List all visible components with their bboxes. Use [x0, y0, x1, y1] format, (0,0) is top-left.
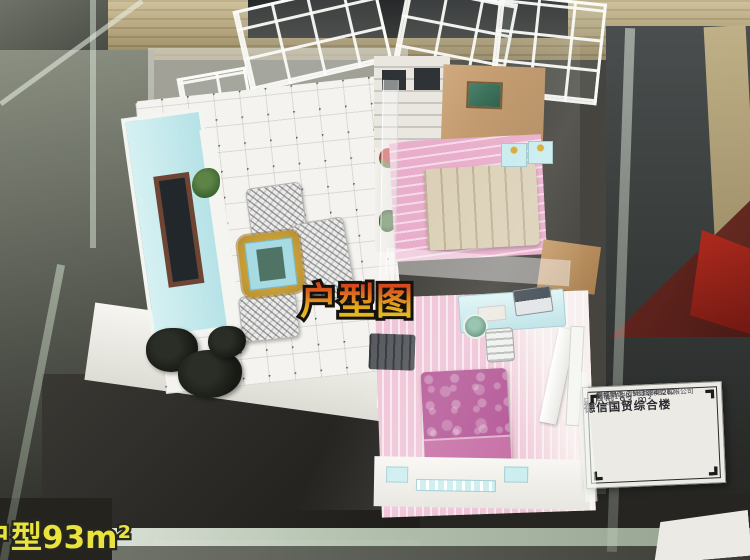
- nightstand-2: [528, 141, 553, 164]
- bedroom1-window-dark-2: [414, 68, 440, 90]
- wall-painting: [466, 81, 503, 109]
- desk-chair: [485, 327, 515, 363]
- placard: 德信国贸综合楼 E 户型 93 m² 比例: 1:20 模型制作:创新建筑模型有…: [582, 381, 726, 489]
- wardrobe: [368, 333, 415, 371]
- unit-area-caption-text: 户型93m²: [0, 520, 131, 556]
- bedroom1-bed: [424, 163, 540, 251]
- coffee-table-tray: [256, 247, 286, 282]
- floor-plan-caption-text: 户型图: [300, 280, 414, 323]
- unit-area-caption: 户型93m²: [0, 514, 148, 560]
- bedroom2-bed: [420, 368, 511, 470]
- display-case-photo: 户型图 德信国贸综合楼 E 户型 93 m² 比例: 1:20 模型制作:创新建…: [0, 0, 750, 560]
- bedroom2-bottom-band: [374, 456, 591, 510]
- bottom-glass-edge: [100, 528, 750, 548]
- cyan-trim-1: [386, 466, 408, 482]
- nightstand-1: [501, 143, 527, 167]
- green-stool: [463, 314, 488, 339]
- tv-screen: [159, 177, 199, 282]
- cyan-trim-3: [504, 466, 528, 482]
- floor-plan-caption: 户型图: [296, 276, 446, 328]
- cyan-trim-2: [416, 479, 496, 492]
- coffee-table-top: [244, 237, 297, 290]
- laptop: [512, 285, 553, 316]
- sofa-bottom: [238, 291, 300, 343]
